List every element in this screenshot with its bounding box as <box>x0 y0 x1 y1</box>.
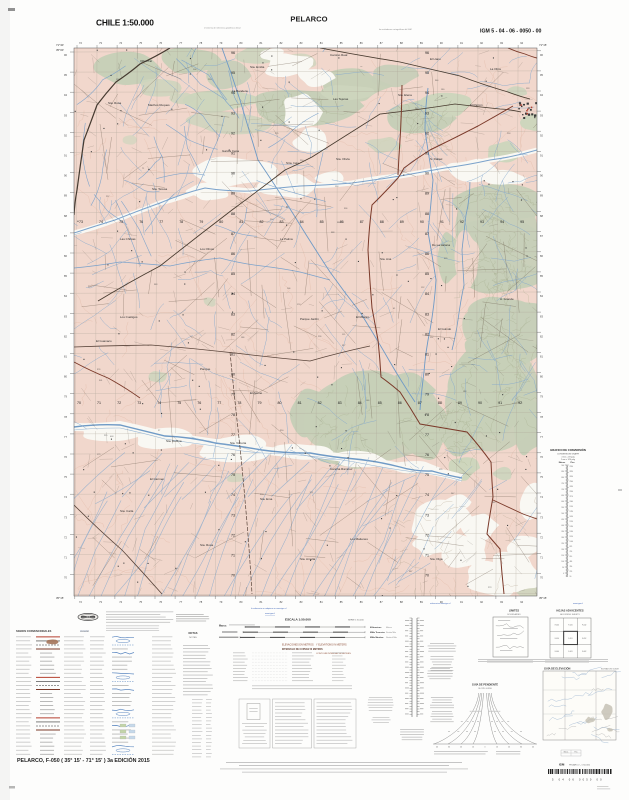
svg-text:los estándares cartográficos d: los estándares cartográficos del IGM <box>379 28 412 31</box>
svg-text:88: 88 <box>231 212 235 216</box>
svg-text:90: 90 <box>420 220 424 224</box>
svg-text:71°15': 71°15' <box>539 43 547 47</box>
svg-text:73: 73 <box>79 220 83 224</box>
svg-text:72: 72 <box>425 533 429 537</box>
svg-text:20: 20 <box>460 747 462 749</box>
svg-text:1260: 1260 <box>570 531 574 533</box>
svg-text:82: 82 <box>425 332 429 336</box>
svg-text:Metros: Metros <box>559 461 566 464</box>
svg-text:ELEVACIONES EN METROS: ELEVACIONES EN METROS <box>282 644 314 647</box>
svg-text:400: 400 <box>561 525 564 527</box>
svg-text:10: 10 <box>496 747 498 749</box>
svg-text:www.igm.cl: www.igm.cl <box>265 613 276 615</box>
svg-text:200: 200 <box>561 549 564 551</box>
svg-text:1650: 1650 <box>570 516 574 518</box>
svg-text:88: 88 <box>380 220 384 224</box>
svg-text:74: 74 <box>231 493 235 497</box>
svg-text:80: 80 <box>425 373 429 377</box>
svg-text:80: 80 <box>219 220 223 224</box>
svg-text:Nautical Mile: Nautical Mile <box>386 636 397 639</box>
svg-text:71°30': 71°30' <box>56 43 64 47</box>
svg-text:La Obra: La Obra <box>490 67 501 71</box>
svg-text:El Guindo: El Guindo <box>438 327 452 331</box>
svg-text:IGM: IGM <box>559 763 565 767</box>
svg-text:90: 90 <box>478 401 482 405</box>
svg-text:79: 79 <box>199 220 203 224</box>
svg-text:PELARCO, F-050 ( 35° 15' - 71°: PELARCO, F-050 ( 35° 15' - 71° 15' ) 3a … <box>17 756 150 764</box>
svg-text:94: 94 <box>231 91 235 95</box>
svg-text:F-060: F-060 <box>555 651 559 653</box>
svg-text:700: 700 <box>561 489 564 491</box>
svg-text:89: 89 <box>231 192 235 196</box>
svg-text:la referencia se adquiere en w: la referencia se adquiere en www.igm.cl <box>251 608 287 610</box>
svg-text:96: 96 <box>425 51 429 55</box>
svg-text:2560: 2560 <box>570 481 574 483</box>
svg-text:F-052: F-052 <box>582 638 586 640</box>
svg-text:F-050: F-050 <box>555 638 559 640</box>
svg-text:75: 75 <box>119 220 123 224</box>
svg-text:220: 220 <box>570 571 573 573</box>
svg-text:78: 78 <box>425 413 429 417</box>
svg-text:F-051: F-051 <box>568 638 572 640</box>
svg-text:87: 87 <box>418 401 422 405</box>
svg-text:Villa Prat: Villa Prat <box>140 59 152 63</box>
svg-text:500: 500 <box>561 513 564 515</box>
svg-text:85: 85 <box>320 220 324 224</box>
svg-text:Srta. Inés: Srta. Inés <box>286 161 299 165</box>
svg-text:ADJOINING SHEETS: ADJOINING SHEETS <box>560 613 580 616</box>
svg-text:74: 74 <box>157 401 161 405</box>
svg-text:F-041: F-041 <box>568 625 572 627</box>
svg-text:NOTES: NOTES <box>189 637 197 639</box>
svg-text:Statute Mile: Statute Mile <box>386 631 396 634</box>
svg-text:Cancha Ramírez: Cancha Ramírez <box>330 467 353 471</box>
svg-text:1520: 1520 <box>570 521 574 523</box>
svg-text:82: 82 <box>231 332 235 336</box>
svg-text:CONTOUR INTERVAL 50 METERS: CONTOUR INTERVAL 50 METERS <box>316 652 351 655</box>
svg-text:0: 0 <box>563 573 564 575</box>
svg-text:81: 81 <box>239 220 243 224</box>
svg-text:90: 90 <box>570 576 572 578</box>
svg-text:www.igm.cl: www.igm.cl <box>573 603 584 605</box>
svg-text:2170: 2170 <box>570 496 574 498</box>
svg-text:80: 80 <box>278 401 282 405</box>
svg-text:78: 78 <box>179 220 183 224</box>
svg-text:86: 86 <box>425 252 429 256</box>
svg-text:480: 480 <box>570 561 573 563</box>
svg-text:76: 76 <box>425 453 429 457</box>
svg-text:91: 91 <box>425 152 429 156</box>
svg-text:Sta. Emilia: Sta. Emilia <box>250 65 265 69</box>
svg-text:95: 95 <box>231 71 235 75</box>
svg-text:S. Rafael: S. Rafael <box>430 157 443 161</box>
svg-text:El Aromo: El Aromo <box>250 391 263 395</box>
svg-text:85: 85 <box>231 272 235 276</box>
svg-text:0: 0 <box>485 747 486 749</box>
svg-text:PELARCO: PELARCO <box>290 15 327 24</box>
svg-text:79: 79 <box>231 393 235 397</box>
svg-text:93: 93 <box>480 220 484 224</box>
svg-text:2690: 2690 <box>570 476 574 478</box>
svg-text:I G M: I G M <box>86 617 91 619</box>
svg-text:77: 77 <box>159 220 163 224</box>
svg-text:CONVERSION GRAPH: CONVERSION GRAPH <box>557 453 579 456</box>
svg-text:95: 95 <box>520 220 524 224</box>
svg-text:85: 85 <box>378 401 382 405</box>
svg-text:75: 75 <box>231 473 235 477</box>
svg-text:600: 600 <box>561 501 564 503</box>
svg-text:ESCALA 1:50.000: ESCALA 1:50.000 <box>285 618 311 622</box>
svg-text:Sta. Delfina: Sta. Delfina <box>166 439 182 443</box>
svg-text:90: 90 <box>425 172 429 176</box>
svg-text:IGM 5 - 04 - 06 - 0050 - 00: IGM 5 - 04 - 06 - 0050 - 00 <box>480 29 542 35</box>
svg-text:610: 610 <box>570 556 573 558</box>
svg-text:Parque Jardín: Parque Jardín <box>300 317 319 321</box>
svg-text:740: 740 <box>570 551 573 553</box>
svg-text:El Parrón: El Parrón <box>470 103 483 107</box>
svg-text:81: 81 <box>231 353 235 357</box>
svg-text:70: 70 <box>77 401 81 405</box>
svg-text:40: 40 <box>436 747 438 749</box>
svg-text:78: 78 <box>231 413 235 417</box>
svg-text:SIGNOS CONVENCIONALES: SIGNOS CONVENCIONALES <box>16 629 52 633</box>
svg-text:2040: 2040 <box>570 501 574 503</box>
svg-text:2 mm = 1/16 pulg: 2 mm = 1/16 pulg <box>561 459 575 461</box>
svg-text:El Guanaco: El Guanaco <box>96 339 112 343</box>
svg-text:76: 76 <box>139 220 143 224</box>
svg-text:el sistema de referencia geodé: el sistema de referencia geodésico ofici… <box>204 27 241 30</box>
svg-text:SLOPE GUIDE: SLOPE GUIDE <box>478 688 492 690</box>
svg-text:referencias www.igm.cl: referencias www.igm.cl <box>430 603 451 605</box>
svg-text:86: 86 <box>398 401 402 405</box>
svg-text:70: 70 <box>425 574 429 578</box>
svg-text:77: 77 <box>231 433 235 437</box>
svg-text:1780: 1780 <box>570 511 574 513</box>
svg-text:F-042: F-042 <box>582 625 586 627</box>
svg-text:83: 83 <box>338 401 342 405</box>
svg-text:71: 71 <box>97 401 101 405</box>
svg-text:PELARCO - 1:50.000: PELARCO - 1:50.000 <box>569 763 591 766</box>
svg-text:40: 40 <box>532 747 534 749</box>
svg-text:5 04 06 0050 00: 5 04 06 0050 00 <box>552 778 604 782</box>
svg-text:450: 450 <box>561 519 564 521</box>
svg-text:84: 84 <box>358 401 362 405</box>
svg-text:Marco:: Marco: <box>219 625 227 628</box>
svg-text:30: 30 <box>520 747 522 749</box>
svg-text:73: 73 <box>425 513 429 517</box>
svg-text:83: 83 <box>425 312 429 316</box>
svg-text:86: 86 <box>340 220 344 224</box>
svg-text:89: 89 <box>400 220 404 224</box>
svg-text:Sta. Olivia: Sta. Olivia <box>336 157 350 161</box>
svg-text:35°15': 35°15' <box>56 596 64 600</box>
svg-text:2430: 2430 <box>570 486 574 488</box>
svg-text:1130: 1130 <box>570 536 574 538</box>
svg-text:150: 150 <box>561 555 564 557</box>
svg-text:79: 79 <box>425 393 429 397</box>
svg-text:CHILE 1:50.000: CHILE 1:50.000 <box>96 18 154 28</box>
svg-text:F-062: F-062 <box>582 651 586 653</box>
svg-text:72: 72 <box>231 533 235 537</box>
svg-text:Sta. Ema: Sta. Ema <box>260 497 273 501</box>
svg-text:76: 76 <box>197 401 201 405</box>
svg-text:La Palma: La Palma <box>280 237 293 241</box>
svg-text:91: 91 <box>498 401 502 405</box>
svg-text:Metros: Metros <box>386 626 392 629</box>
svg-text:1000: 1000 <box>570 541 574 543</box>
svg-text:73: 73 <box>231 513 235 517</box>
svg-text:88: 88 <box>425 212 429 216</box>
svg-text:88: 88 <box>438 401 442 405</box>
svg-text:F-040: F-040 <box>555 625 559 627</box>
svg-text:El Milagro: El Milagro <box>356 315 370 319</box>
svg-text:35°15': 35°15' <box>539 596 547 600</box>
svg-text:80: 80 <box>231 373 235 377</box>
svg-text:SERIE 1:50.000: SERIE 1:50.000 <box>348 620 364 622</box>
svg-text:77: 77 <box>217 401 221 405</box>
svg-text:94: 94 <box>425 91 429 95</box>
svg-text:850: 850 <box>561 471 564 473</box>
svg-text:Las Chilcas: Las Chilcas <box>120 237 136 241</box>
svg-text:Sta. Amelia: Sta. Amelia <box>300 557 316 561</box>
svg-text:Los Cuétigos: Los Cuétigos <box>120 315 138 319</box>
svg-text:Milla Náutica: Milla Náutica <box>370 636 384 639</box>
svg-text:LEGEND: LEGEND <box>80 631 89 633</box>
svg-text:85: 85 <box>425 272 429 276</box>
svg-text:350: 350 <box>570 566 573 568</box>
svg-text:92: 92 <box>231 131 235 135</box>
svg-text:ELEVATION GUIDE: ELEVATION GUIDE <box>601 668 619 671</box>
svg-text:35°00': 35°00' <box>56 48 64 52</box>
svg-text:BOUNDARIES: BOUNDARIES <box>507 613 521 616</box>
svg-text:A. Grande: A. Grande <box>500 297 514 301</box>
svg-text:87: 87 <box>425 232 429 236</box>
svg-text:Los Olivos: Los Olivos <box>200 247 215 251</box>
svg-text:Pangue: Pangue <box>200 367 211 371</box>
svg-text:Los Maitenes: Los Maitenes <box>350 537 368 541</box>
svg-text:71: 71 <box>425 554 429 558</box>
svg-text:86: 86 <box>231 252 235 256</box>
svg-text:90: 90 <box>231 172 235 176</box>
svg-text:87: 87 <box>231 232 235 236</box>
svg-text:84: 84 <box>425 292 429 296</box>
svg-text:Sta. Elena: Sta. Elena <box>398 93 412 97</box>
svg-text:550: 550 <box>561 507 564 509</box>
svg-text:81: 81 <box>425 353 429 357</box>
svg-text:70: 70 <box>231 574 235 578</box>
svg-text:Machos Ruques: Machos Ruques <box>148 103 170 107</box>
svg-text:NOTAS: NOTAS <box>189 631 198 635</box>
svg-text:75: 75 <box>425 473 429 477</box>
svg-text:72: 72 <box>117 401 121 405</box>
svg-text:Sta. Ana: Sta. Ana <box>380 257 392 261</box>
svg-text:1390: 1390 <box>570 526 574 528</box>
svg-text:Sta. Olga: Sta. Olga <box>430 557 443 561</box>
svg-text:30: 30 <box>448 747 450 749</box>
svg-text:84: 84 <box>300 220 304 224</box>
svg-text:Milla Terrestre: Milla Terrestre <box>370 631 386 634</box>
svg-text:250: 250 <box>561 543 564 545</box>
svg-text:75: 75 <box>177 401 181 405</box>
svg-text:73: 73 <box>137 401 141 405</box>
svg-text:96: 96 <box>231 51 235 55</box>
svg-text:89: 89 <box>458 401 462 405</box>
svg-text:Sta. Rosa: Sta. Rosa <box>108 101 122 105</box>
svg-text:Sta. Victoria: Sta. Victoria <box>230 441 246 445</box>
svg-text:74: 74 <box>99 220 103 224</box>
svg-text:94: 94 <box>500 220 504 224</box>
svg-text:Pies: Pies <box>575 752 578 754</box>
svg-text:Y ELEVATIONS IN METERS: Y ELEVATIONS IN METERS <box>316 644 347 647</box>
svg-text:HOJAS ADYACENTES: HOJAS ADYACENTES <box>556 609 583 613</box>
svg-text:92: 92 <box>425 131 429 135</box>
svg-text:93: 93 <box>231 111 235 115</box>
svg-text:650: 650 <box>561 495 564 497</box>
svg-text:2300: 2300 <box>570 491 574 493</box>
svg-text:Las Tejeras: Las Tejeras <box>333 97 349 101</box>
svg-text:83: 83 <box>231 312 235 316</box>
svg-text:93: 93 <box>425 111 429 115</box>
svg-text:Kilómetros: Kilómetros <box>370 626 382 629</box>
svg-text:91: 91 <box>231 152 235 156</box>
svg-text:INTERVALO DE CURVAS 50 METROS: INTERVALO DE CURVAS 50 METROS <box>282 648 323 651</box>
svg-text:78: 78 <box>237 401 241 405</box>
svg-text:82: 82 <box>260 220 264 224</box>
svg-text:20: 20 <box>508 747 510 749</box>
svg-text:El Carmen: El Carmen <box>150 477 165 481</box>
svg-text:87: 87 <box>360 220 364 224</box>
svg-text:750: 750 <box>561 483 564 485</box>
svg-text:Sta. Carla: Sta. Carla <box>120 509 134 513</box>
svg-text:95: 95 <box>425 71 429 75</box>
svg-text:300: 300 <box>561 537 564 539</box>
svg-text:2820: 2820 <box>570 471 574 473</box>
svg-text:1910: 1910 <box>570 506 574 508</box>
svg-text:92: 92 <box>518 401 522 405</box>
svg-text:870: 870 <box>570 546 573 548</box>
svg-text:91: 91 <box>440 220 444 224</box>
svg-text:Sta. Rosa: Sta. Rosa <box>200 543 214 547</box>
svg-text:350: 350 <box>561 531 564 533</box>
svg-text:Sta. Teresa: Sta. Teresa <box>152 187 167 191</box>
svg-text:F-061: F-061 <box>568 651 572 653</box>
svg-text:100: 100 <box>561 561 564 563</box>
svg-text:El Llano: El Llano <box>430 57 441 61</box>
svg-text:79: 79 <box>258 401 262 405</box>
svg-text:84: 84 <box>231 292 235 296</box>
svg-text:Camino Real: Camino Real <box>330 53 348 57</box>
svg-text:2950: 2950 <box>570 466 574 468</box>
svg-text:82: 82 <box>318 401 322 405</box>
svg-text:50: 50 <box>562 567 564 569</box>
svg-text:10: 10 <box>472 747 474 749</box>
svg-text:De La Jarana: De La Jarana <box>432 243 450 247</box>
svg-text:74: 74 <box>425 493 429 497</box>
svg-text:92: 92 <box>460 220 464 224</box>
svg-text:81: 81 <box>298 401 302 405</box>
svg-text:71: 71 <box>231 554 235 558</box>
svg-text:800: 800 <box>561 477 564 479</box>
svg-text:89: 89 <box>425 192 429 196</box>
svg-text:900: 900 <box>561 465 564 467</box>
svg-text:77: 77 <box>425 433 429 437</box>
svg-text:83: 83 <box>280 220 284 224</box>
svg-text:76: 76 <box>231 453 235 457</box>
